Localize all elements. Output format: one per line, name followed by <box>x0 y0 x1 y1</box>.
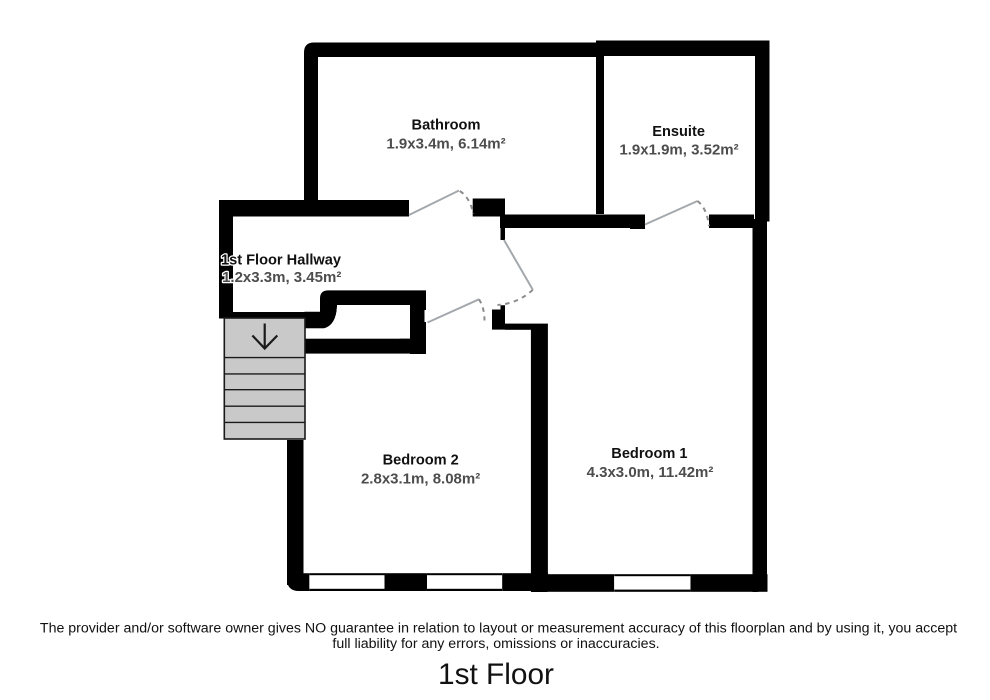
svg-text:1.2x3.3m, 3.45m²: 1.2x3.3m, 3.45m² <box>222 269 341 286</box>
svg-text:2.8x3.1m, 8.08m²: 2.8x3.1m, 8.08m² <box>361 471 480 488</box>
svg-text:1st Floor Hallway: 1st Floor Hallway <box>221 252 342 268</box>
svg-text:4.3x3.0m, 11.42m²: 4.3x3.0m, 11.42m² <box>587 464 714 481</box>
svg-text:Bathroom: Bathroom <box>412 118 481 134</box>
svg-text:1.9x3.4m, 6.14m²: 1.9x3.4m, 6.14m² <box>386 136 505 153</box>
svg-text:Ensuite: Ensuite <box>652 124 705 140</box>
svg-text:Bedroom 1: Bedroom 1 <box>611 446 687 462</box>
svg-text:The provider and/or software o: The provider and/or software owner gives… <box>40 620 957 636</box>
svg-text:Bedroom 2: Bedroom 2 <box>383 453 459 469</box>
svg-text:1.9x1.9m, 3.52m²: 1.9x1.9m, 3.52m² <box>619 142 738 159</box>
svg-text:full liability for any errors,: full liability for any errors, omissions… <box>332 636 659 652</box>
svg-text:1st Floor: 1st Floor <box>438 658 554 691</box>
